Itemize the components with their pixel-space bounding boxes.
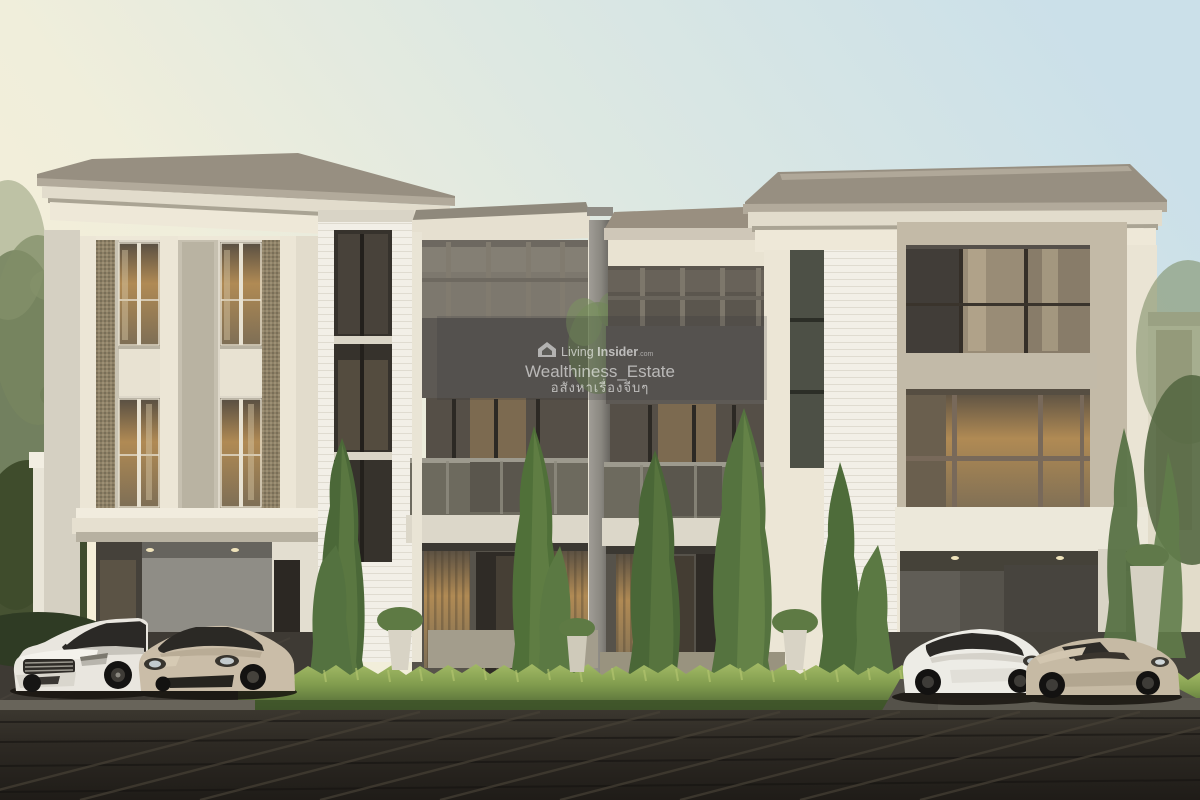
- svg-text:Wealthiness_Estate: Wealthiness_Estate: [525, 362, 675, 381]
- svg-text:อสังหาเรื่องจีบๆ: อสังหาเรื่องจีบๆ: [551, 379, 649, 395]
